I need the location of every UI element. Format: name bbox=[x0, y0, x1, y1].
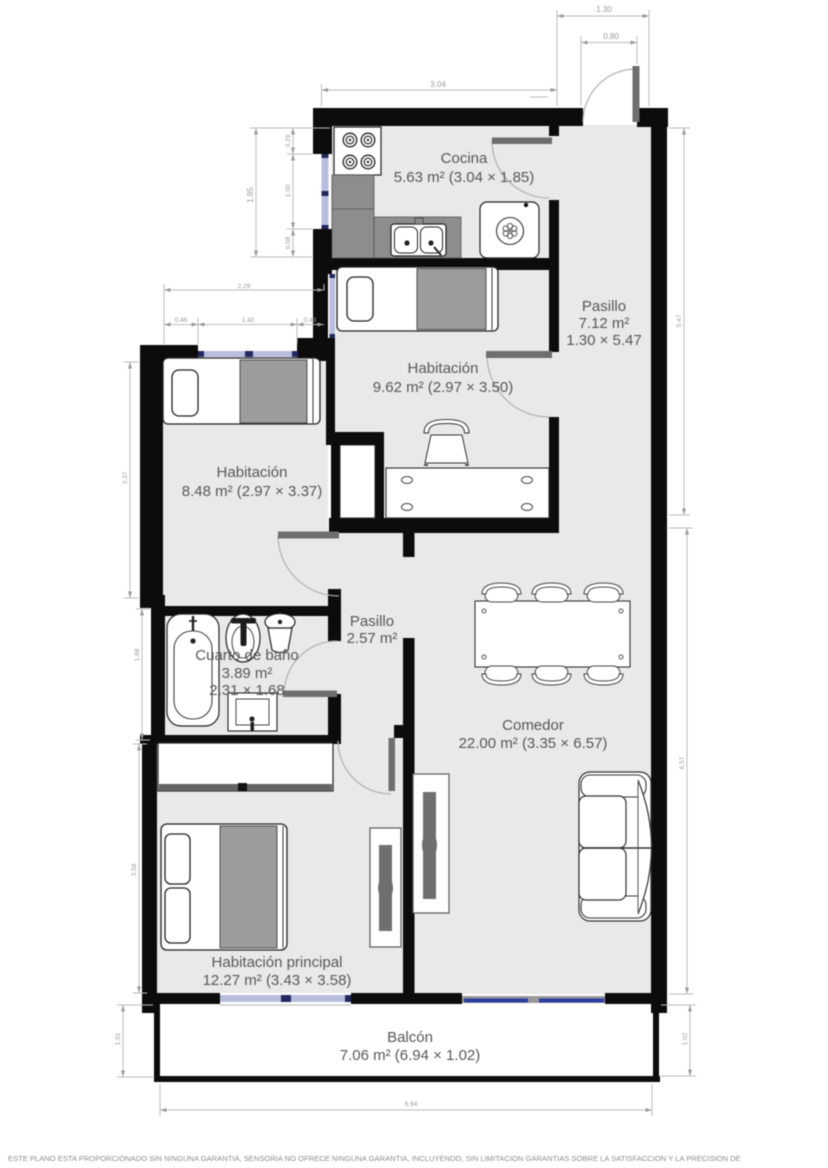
svg-text:2.29: 2.29 bbox=[238, 283, 251, 290]
svg-text:1.02: 1.02 bbox=[682, 1032, 689, 1045]
svg-text:0.80: 0.80 bbox=[603, 32, 619, 41]
svg-text:1.40: 1.40 bbox=[242, 317, 255, 324]
svg-text:1.85: 1.85 bbox=[246, 187, 255, 203]
svg-text:5.47: 5.47 bbox=[676, 314, 683, 327]
svg-text:3.04: 3.04 bbox=[430, 80, 446, 89]
svg-text:Balcón: Balcón bbox=[387, 1029, 433, 1046]
svg-text:0.46: 0.46 bbox=[175, 317, 188, 324]
svg-text:12.27 m² (3.43 × 3.58): 12.27 m² (3.43 × 3.58) bbox=[203, 972, 352, 989]
svg-text:Habitación: Habitación bbox=[408, 360, 479, 377]
svg-text:1.30 × 5.47: 1.30 × 5.47 bbox=[566, 332, 641, 349]
svg-text:Habitación principal: Habitación principal bbox=[212, 954, 343, 971]
svg-text:0.08: 0.08 bbox=[285, 236, 292, 249]
svg-text:22.00 m² (3.35 × 6.57): 22.00 m² (3.35 × 6.57) bbox=[459, 735, 608, 752]
svg-text:8.48 m² (2.97 × 3.37): 8.48 m² (2.97 × 3.37) bbox=[182, 483, 323, 500]
svg-text:2.57 m²: 2.57 m² bbox=[347, 630, 398, 647]
svg-text:Cocina: Cocina bbox=[441, 150, 488, 167]
svg-text:0.43: 0.43 bbox=[304, 317, 317, 324]
svg-text:5.63 m² (3.04 × 1.85): 5.63 m² (3.04 × 1.85) bbox=[394, 169, 535, 186]
svg-text:1.00: 1.00 bbox=[285, 184, 292, 197]
svg-text:6.94: 6.94 bbox=[405, 1101, 418, 1108]
svg-text:6.57: 6.57 bbox=[679, 756, 686, 769]
svg-text:0.29: 0.29 bbox=[285, 134, 292, 147]
svg-text:Cuarto de baño: Cuarto de baño bbox=[195, 647, 298, 664]
svg-text:Pasillo: Pasillo bbox=[582, 298, 626, 315]
svg-text:9.62 m² (2.97 × 3.50): 9.62 m² (2.97 × 3.50) bbox=[373, 379, 514, 396]
svg-text:1.01: 1.01 bbox=[115, 1032, 122, 1045]
svg-text:7.06 m² (6.94 × 1.02): 7.06 m² (6.94 × 1.02) bbox=[340, 1047, 481, 1064]
svg-text:3.37: 3.37 bbox=[122, 471, 129, 484]
svg-text:1.68: 1.68 bbox=[134, 648, 141, 661]
svg-text:Comedor: Comedor bbox=[502, 717, 564, 734]
svg-text:2.31 × 1.68: 2.31 × 1.68 bbox=[209, 682, 284, 699]
svg-text:Pasillo: Pasillo bbox=[350, 613, 394, 630]
svg-text:3.89 m²: 3.89 m² bbox=[222, 665, 273, 682]
svg-text:Habitación: Habitación bbox=[217, 464, 288, 481]
svg-text:3.58: 3.58 bbox=[131, 863, 138, 876]
svg-text:ESTE PLANO ESTA PROPORCIONADO: ESTE PLANO ESTA PROPORCIONADO SIN NINGUN… bbox=[8, 1154, 741, 1163]
svg-text:1.30: 1.30 bbox=[596, 5, 612, 14]
svg-text:7.12 m²: 7.12 m² bbox=[579, 315, 630, 332]
